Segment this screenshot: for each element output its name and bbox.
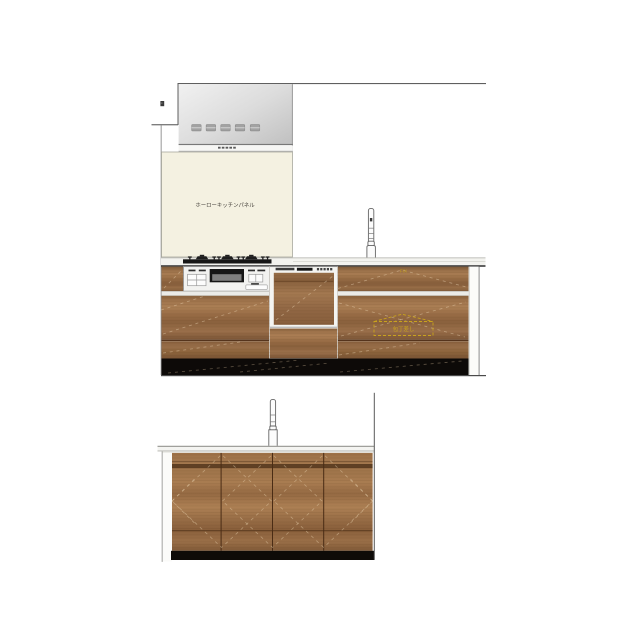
svg-text:ホーローキッチンパネル: ホーローキッチンパネル	[195, 202, 255, 209]
svg-text:FIX: FIX	[400, 269, 407, 274]
svg-text:包丁差し: 包丁差し	[393, 325, 415, 333]
